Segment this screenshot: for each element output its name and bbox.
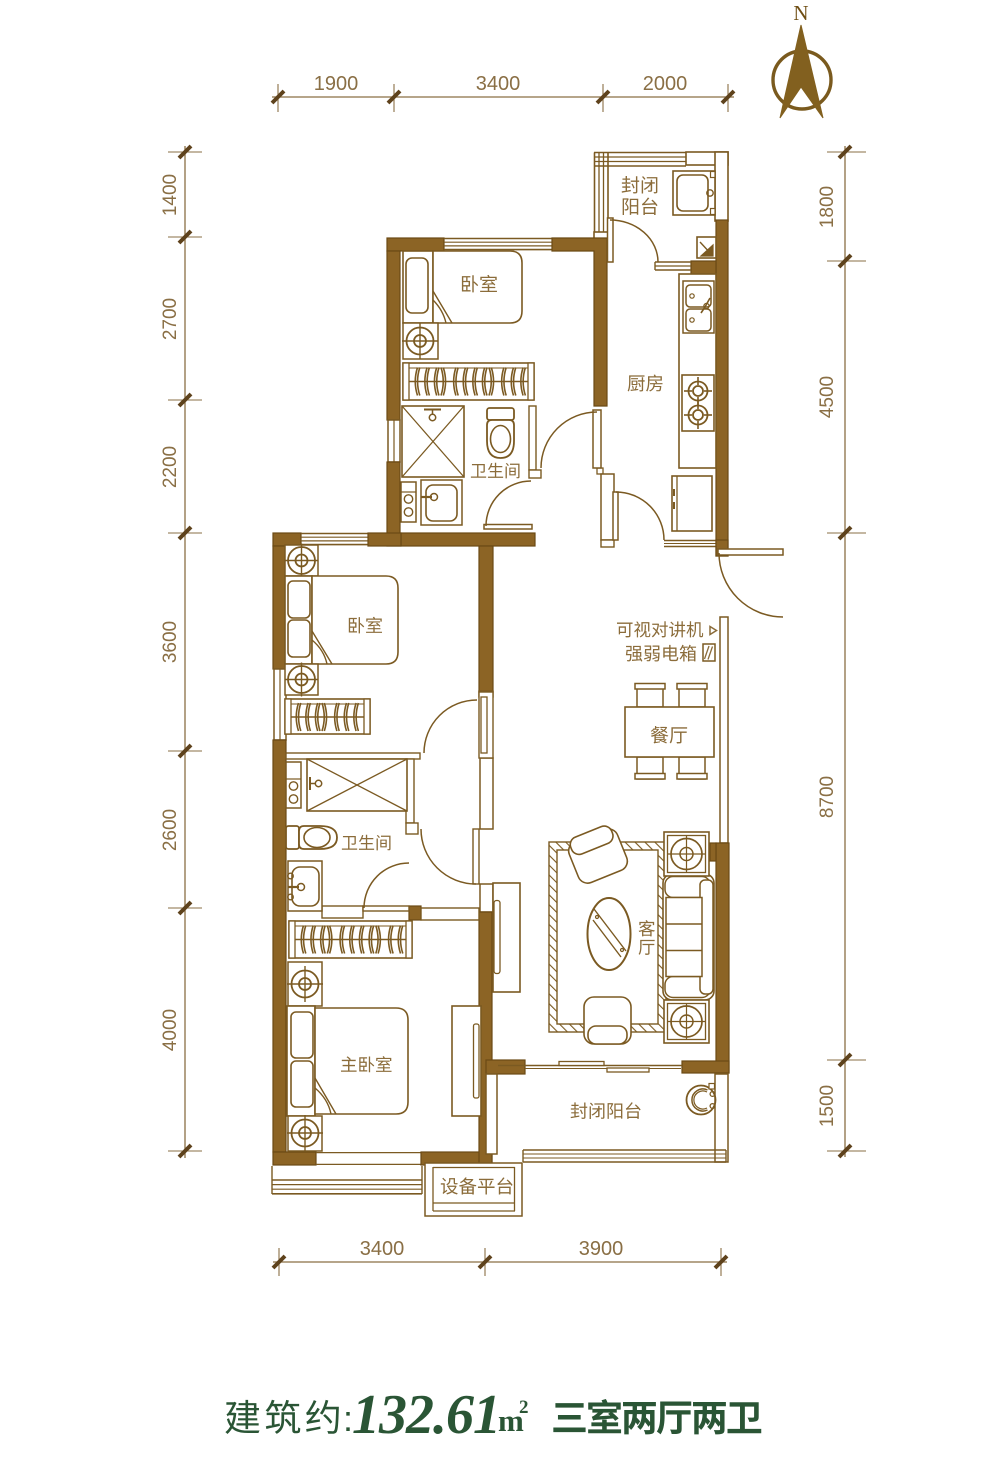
svg-text:3400: 3400: [360, 1238, 405, 1260]
svg-text:2000: 2000: [643, 73, 688, 95]
svg-text:4500: 4500: [817, 376, 838, 418]
svg-text:1500: 1500: [817, 1085, 838, 1127]
svg-text:2200: 2200: [160, 446, 181, 488]
svg-text:8700: 8700: [817, 776, 838, 818]
svg-text:2600: 2600: [160, 809, 181, 851]
svg-text:3400: 3400: [476, 73, 521, 95]
svg-text:N: N: [793, 1, 808, 25]
svg-text:132.61: 132.61: [352, 1384, 500, 1446]
svg-text:4000: 4000: [160, 1009, 181, 1051]
svg-text:1900: 1900: [314, 73, 359, 95]
svg-text:1400: 1400: [160, 174, 181, 216]
svg-text:3900: 3900: [579, 1238, 624, 1260]
svg-text:1800: 1800: [817, 186, 838, 228]
svg-text:3600: 3600: [160, 621, 181, 663]
svg-text:2: 2: [519, 1397, 529, 1418]
svg-text:2700: 2700: [160, 298, 181, 340]
